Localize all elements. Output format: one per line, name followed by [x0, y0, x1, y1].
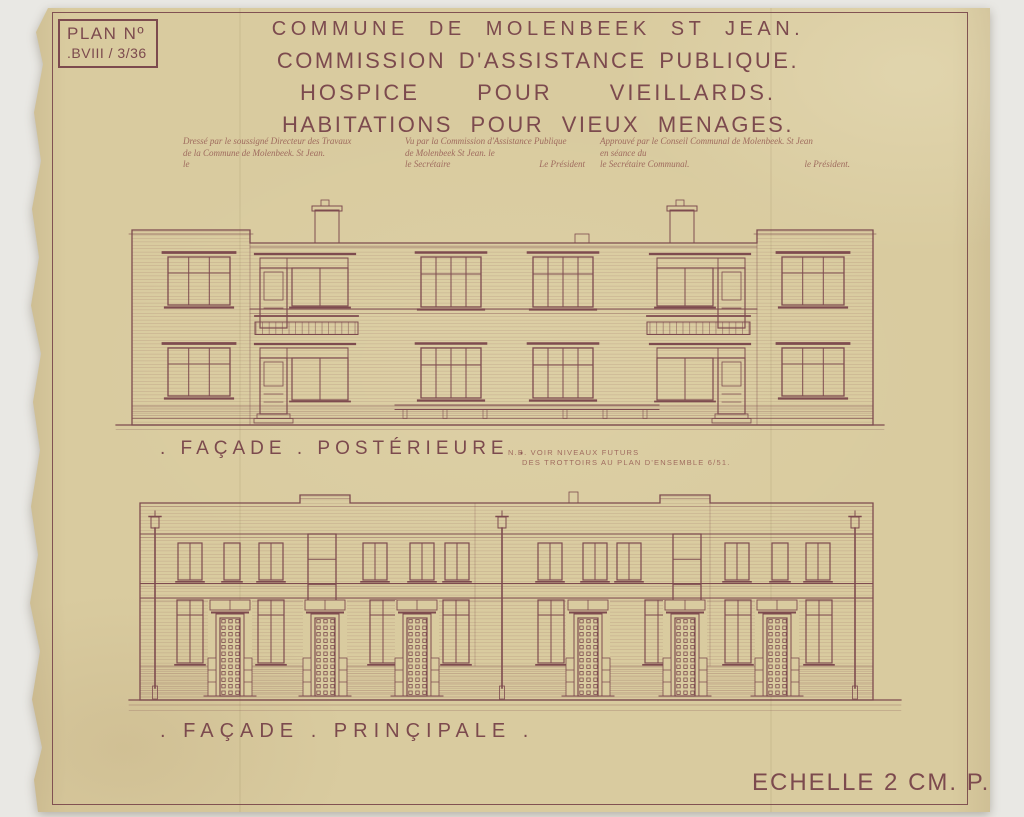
- title-line-habitations: HABITATIONS POUR VIEUX MENAGES.: [238, 112, 838, 138]
- signature-text: le: [183, 159, 398, 171]
- signature-text: Dressé par le soussigné Directeur des Tr…: [183, 136, 398, 148]
- signature-secretary: le Secrétaire Communal.: [600, 159, 689, 171]
- signature-block-commission: Vu par la Commission d'Assistance Publiq…: [405, 136, 585, 171]
- signature-text: de la Commune de Molenbeek. St Jean.: [183, 148, 398, 160]
- signature-block-director: Dressé par le soussigné Directeur des Tr…: [183, 136, 398, 171]
- scanned-architectural-plan: PLAN Nº .BVIII / 3/36 COMMUNE DE MOLENBE…: [0, 0, 1024, 817]
- levels-note: N.B. VOIR NIVEAUX FUTURS DES TROTTOIRS A…: [508, 448, 730, 468]
- note-line: DES TROTTOIRS AU PLAN D'ENSEMBLE 6/51.: [522, 458, 730, 468]
- plan-number-title: PLAN Nº: [67, 24, 151, 44]
- facade-posterieure-drawing: [110, 196, 890, 436]
- signature-text: en séance du: [600, 148, 850, 160]
- paper-sheet: PLAN Nº .BVIII / 3/36 COMMUNE DE MOLENBE…: [28, 8, 990, 812]
- scale-label: ECHELLE 2 CM. P.M.: [752, 769, 1021, 797]
- signature-block-council: Approuvé par le Conseil Communal de Mole…: [600, 136, 850, 171]
- signature-text: Vu par la Commission d'Assistance Publiq…: [405, 136, 585, 148]
- plan-number-box: PLAN Nº .BVIII / 3/36: [58, 19, 158, 68]
- facade-principale-drawing: [125, 488, 905, 723]
- facade-posterieure-label: . FAÇADE . POSTÉRIEURE .: [160, 438, 529, 460]
- signature-president: Le Président: [539, 159, 585, 171]
- signature-secretary: le Secrétaire: [405, 159, 450, 171]
- signature-president: le Président.: [805, 159, 851, 171]
- paper-sheet-wrapper: PLAN Nº .BVIII / 3/36 COMMUNE DE MOLENBE…: [28, 8, 990, 812]
- title-line-commission: COMMISSION D'ASSISTANCE PUBLIQUE.: [238, 48, 838, 74]
- title-line-hospice: HOSPICE POUR VIEILLARDS.: [238, 80, 838, 106]
- note-line: N.B. VOIR NIVEAUX FUTURS: [508, 448, 730, 458]
- title-line-commune: COMMUNE DE MOLENBEEK ST JEAN.: [238, 18, 838, 41]
- signature-text: de Molenbeek St Jean. le: [405, 148, 585, 160]
- title-block: COMMUNE DE MOLENBEEK ST JEAN. COMMISSION…: [238, 18, 838, 138]
- facade-principale-label: . FAÇADE . PRINÇIPALE .: [160, 720, 534, 743]
- plan-number-value: .BVIII / 3/36: [67, 44, 151, 63]
- signature-text: Approuvé par le Conseil Communal de Mole…: [600, 136, 850, 148]
